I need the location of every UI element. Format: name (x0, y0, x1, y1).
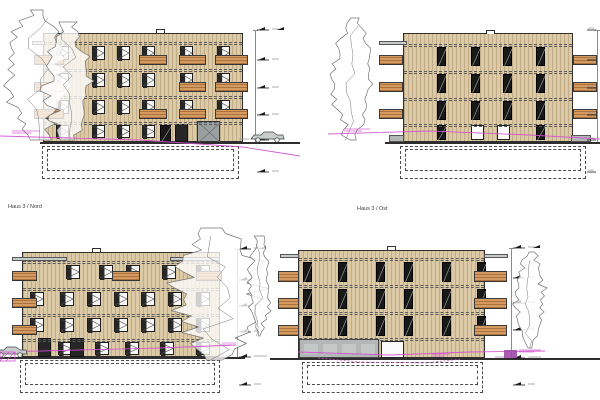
roof-slab (379, 41, 407, 45)
window (471, 125, 484, 140)
floor-line (23, 288, 219, 291)
window (536, 125, 545, 140)
balcony (12, 271, 37, 281)
floor-line (404, 44, 572, 47)
window (497, 125, 510, 140)
window (87, 318, 101, 332)
window (471, 47, 480, 66)
level-marker (513, 275, 535, 278)
level-marker (239, 329, 261, 332)
dimension-tick (253, 30, 258, 31)
balcony (573, 109, 597, 119)
window (117, 100, 130, 114)
window (536, 47, 545, 66)
tree-sketch (513, 252, 548, 348)
window (404, 316, 413, 336)
dimension-magenta-segment (511, 302, 512, 308)
window (60, 318, 74, 332)
window (114, 292, 128, 306)
window (376, 316, 385, 336)
roof-vent (486, 30, 495, 34)
tree-sketch (247, 236, 271, 336)
window (168, 292, 182, 306)
roof-slab (389, 135, 404, 142)
window (404, 262, 413, 282)
level-marker (257, 169, 279, 172)
window (142, 73, 155, 87)
level-marker (257, 112, 279, 115)
tree-sketch (525, 260, 532, 348)
dimension-tick (595, 30, 600, 31)
balcony (278, 271, 299, 282)
garage-panel (304, 344, 318, 354)
balcony (12, 298, 37, 308)
dimension-magenta-segment (237, 295, 238, 300)
basement-outline-inner (47, 149, 234, 171)
roof-vent (156, 29, 165, 33)
window (303, 262, 312, 282)
balcony (215, 109, 248, 119)
label-haus-3-nord: Haus 3 / Nord (8, 204, 42, 210)
tree-sketch (255, 244, 263, 336)
window (160, 125, 171, 142)
balcony (139, 109, 167, 119)
window (376, 262, 385, 282)
tree-sketch (330, 18, 373, 140)
floor-line (23, 314, 219, 317)
floor-line (404, 98, 572, 101)
balcony (573, 82, 597, 92)
floor-line (299, 258, 484, 261)
window (92, 125, 105, 138)
roof-slab (12, 257, 67, 261)
roof-vent (387, 246, 396, 250)
window (56, 125, 69, 138)
window (196, 342, 210, 355)
dimension-line (255, 30, 256, 142)
door (175, 124, 188, 142)
dimension-line (237, 249, 238, 357)
balcony (474, 271, 507, 282)
balcony (474, 298, 507, 309)
floor-line (23, 261, 219, 264)
window (117, 125, 130, 138)
floor-line (44, 122, 242, 125)
basement-outline-inner (405, 149, 581, 171)
level-marker (513, 300, 535, 303)
window (376, 289, 385, 309)
dimension-magenta-segment (597, 84, 598, 92)
window (404, 289, 413, 309)
ground-line (40, 142, 300, 144)
ground-line (270, 358, 600, 360)
roof-vent (92, 248, 101, 252)
window (125, 342, 139, 355)
level-marker (513, 382, 535, 385)
dimension-tick (235, 249, 240, 250)
balcony (278, 298, 299, 309)
window (87, 292, 101, 306)
roof-slab (32, 41, 45, 45)
garage-panel (342, 344, 356, 354)
level-marker (239, 277, 261, 280)
window (142, 125, 155, 138)
dimension-magenta-segment (255, 88, 256, 112)
level-marker (239, 137, 285, 140)
level-marker (513, 327, 535, 330)
balcony (139, 55, 167, 65)
balcony (179, 82, 206, 92)
window (503, 47, 512, 66)
floor-line (44, 69, 242, 72)
window (471, 101, 480, 120)
window (503, 74, 512, 93)
window (92, 100, 105, 114)
window (196, 292, 210, 306)
window (92, 46, 105, 60)
balcony (196, 271, 222, 281)
window (437, 47, 446, 66)
roof-slab (571, 135, 591, 142)
balcony (34, 109, 64, 119)
window (303, 289, 312, 309)
level-marker (239, 246, 266, 249)
window (338, 289, 347, 309)
window (442, 289, 451, 309)
level-marker (257, 57, 279, 60)
window (437, 125, 446, 140)
floor-line (404, 124, 572, 127)
window (92, 73, 105, 87)
balcony (12, 325, 37, 335)
floor-line (44, 42, 242, 45)
basement-outline-inner (307, 365, 478, 385)
window (437, 101, 446, 120)
window (60, 292, 74, 306)
window (503, 101, 512, 120)
door (381, 341, 404, 358)
balcony (474, 325, 507, 336)
balcony (112, 271, 140, 281)
window (117, 73, 130, 87)
balcony (179, 109, 206, 119)
garage-door (299, 339, 379, 358)
window (95, 342, 109, 355)
level-marker (257, 27, 284, 30)
window (160, 342, 174, 355)
window (338, 262, 347, 282)
level-marker (239, 303, 261, 306)
roof-slab (484, 254, 508, 258)
drawing-canvas: Haus 3 / Nord Haus 3 / Ost (0, 0, 600, 400)
balcony (379, 55, 403, 65)
ground-line (385, 142, 600, 144)
balcony (278, 325, 299, 336)
label-haus-3-ost: Haus 3 / Ost (357, 206, 388, 212)
roof-slab (280, 254, 299, 258)
window (168, 318, 182, 332)
balcony (215, 82, 248, 92)
level-marker (513, 245, 540, 248)
balcony (179, 55, 206, 65)
balcony (34, 55, 64, 65)
floor-line (404, 71, 572, 74)
window (162, 265, 176, 279)
ground-line (0, 357, 245, 359)
roof-slab (170, 257, 220, 261)
window (66, 265, 80, 279)
window (117, 46, 130, 60)
window (141, 318, 155, 332)
balcony (34, 82, 64, 92)
balcony (215, 55, 248, 65)
floor-line (23, 339, 219, 342)
garage-panel (361, 344, 375, 354)
floor-line (299, 312, 484, 315)
dimension-tick (509, 248, 514, 249)
balcony (379, 109, 403, 119)
level-marker (239, 382, 261, 385)
window (536, 74, 545, 93)
floor-line (299, 285, 484, 288)
window (303, 316, 312, 336)
window (442, 262, 451, 282)
balcony (379, 82, 403, 92)
balcony (573, 55, 597, 65)
tree-sketch (345, 26, 358, 140)
basement-outline-inner (25, 363, 215, 385)
window (536, 101, 545, 120)
level-marker (257, 85, 279, 88)
window (437, 74, 446, 93)
window (471, 74, 480, 93)
window (114, 318, 128, 332)
garage-panel (323, 344, 337, 354)
window (442, 316, 451, 336)
window (141, 292, 155, 306)
floor-line (44, 96, 242, 99)
window (338, 316, 347, 336)
window (99, 265, 113, 279)
window (196, 318, 210, 332)
